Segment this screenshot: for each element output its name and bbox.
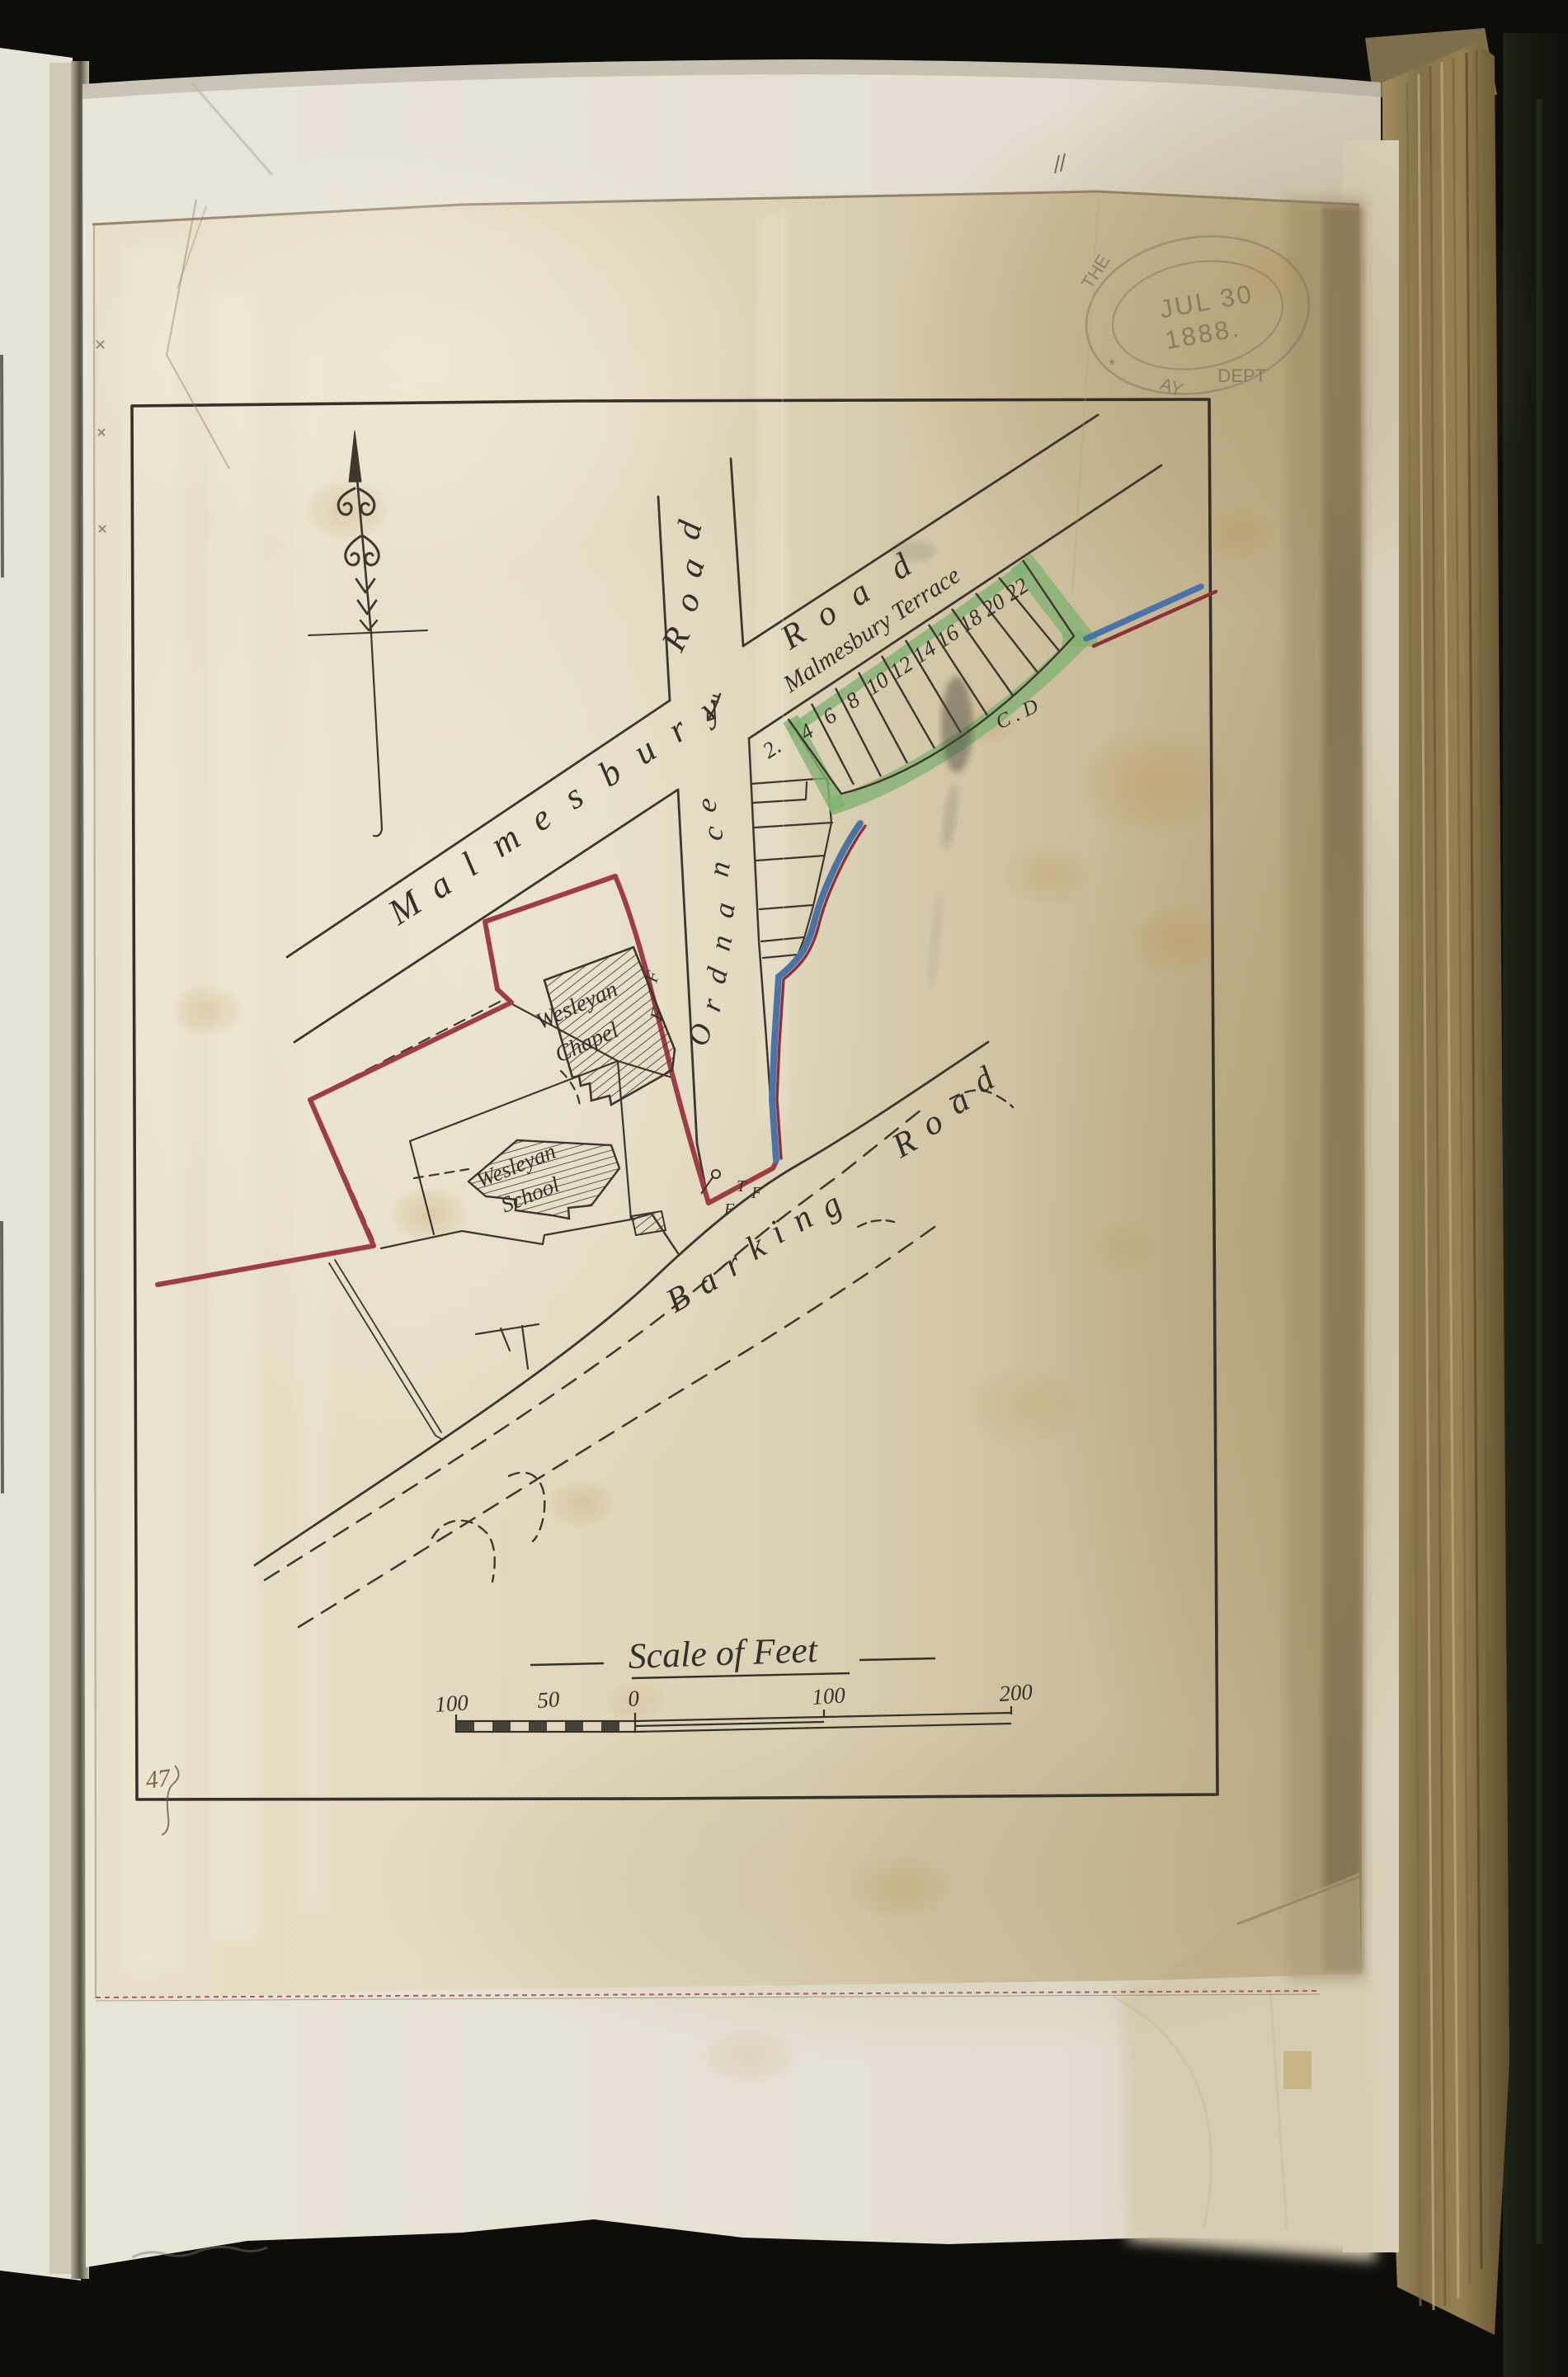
svg-text:100: 100: [434, 1690, 469, 1717]
svg-text:0: 0: [627, 1686, 640, 1711]
svg-text:50: 50: [536, 1686, 561, 1713]
svg-text:F: F: [751, 1184, 762, 1202]
svg-text:DEPT: DEPT: [1217, 366, 1266, 386]
svg-text:200: 200: [998, 1679, 1034, 1706]
svg-text:T: T: [737, 1177, 747, 1196]
svg-text:F: F: [723, 1200, 735, 1219]
svg-text:Scale of Feet: Scale of Feet: [628, 1629, 820, 1677]
svg-text:100: 100: [811, 1682, 846, 1710]
